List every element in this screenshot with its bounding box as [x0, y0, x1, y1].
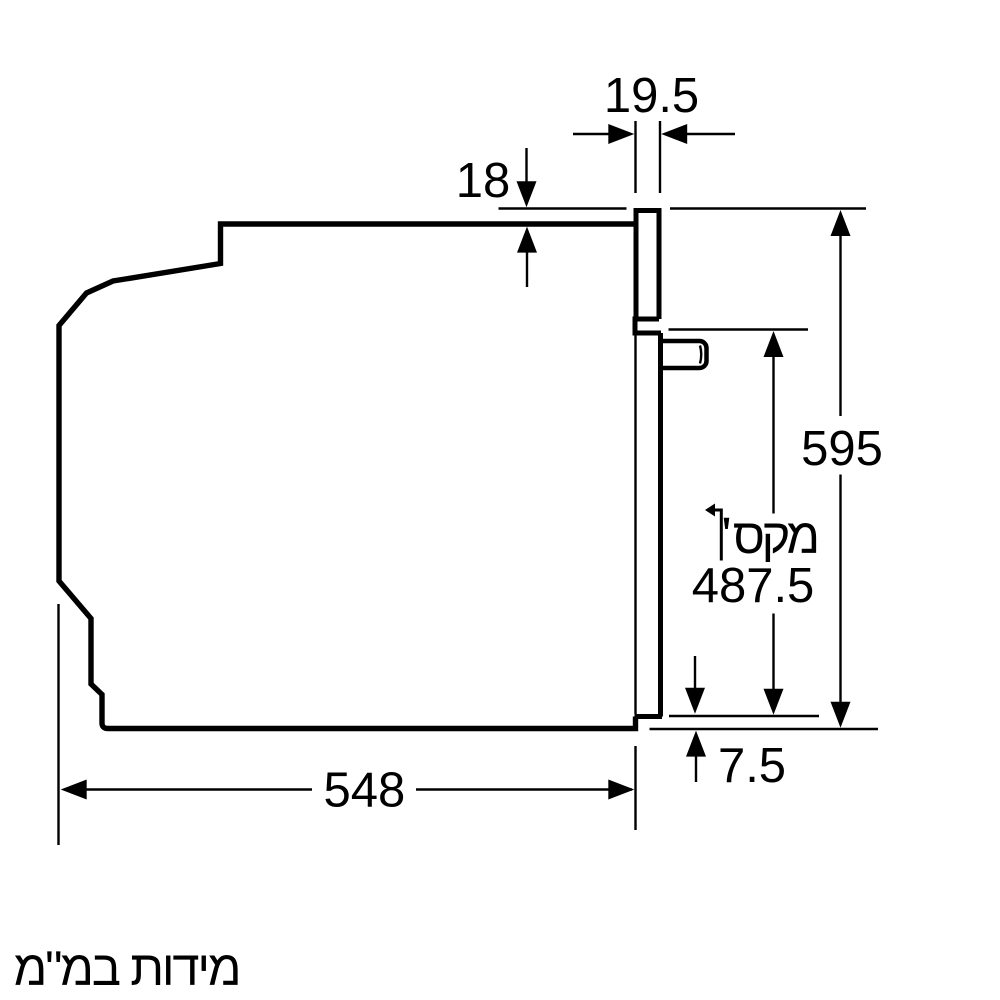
svg-text:מקס: מקס [733, 510, 817, 564]
svg-text:19.5: 19.5 [604, 69, 699, 123]
svg-text:7.5: 7.5 [718, 739, 786, 793]
svg-text:487.5: 487.5 [692, 559, 815, 613]
svg-text:18: 18 [456, 154, 511, 208]
svg-text:מידות במ"מ: מידות במ"מ [14, 942, 240, 996]
svg-text:548: 548 [324, 764, 406, 818]
svg-text:595: 595 [801, 422, 883, 476]
